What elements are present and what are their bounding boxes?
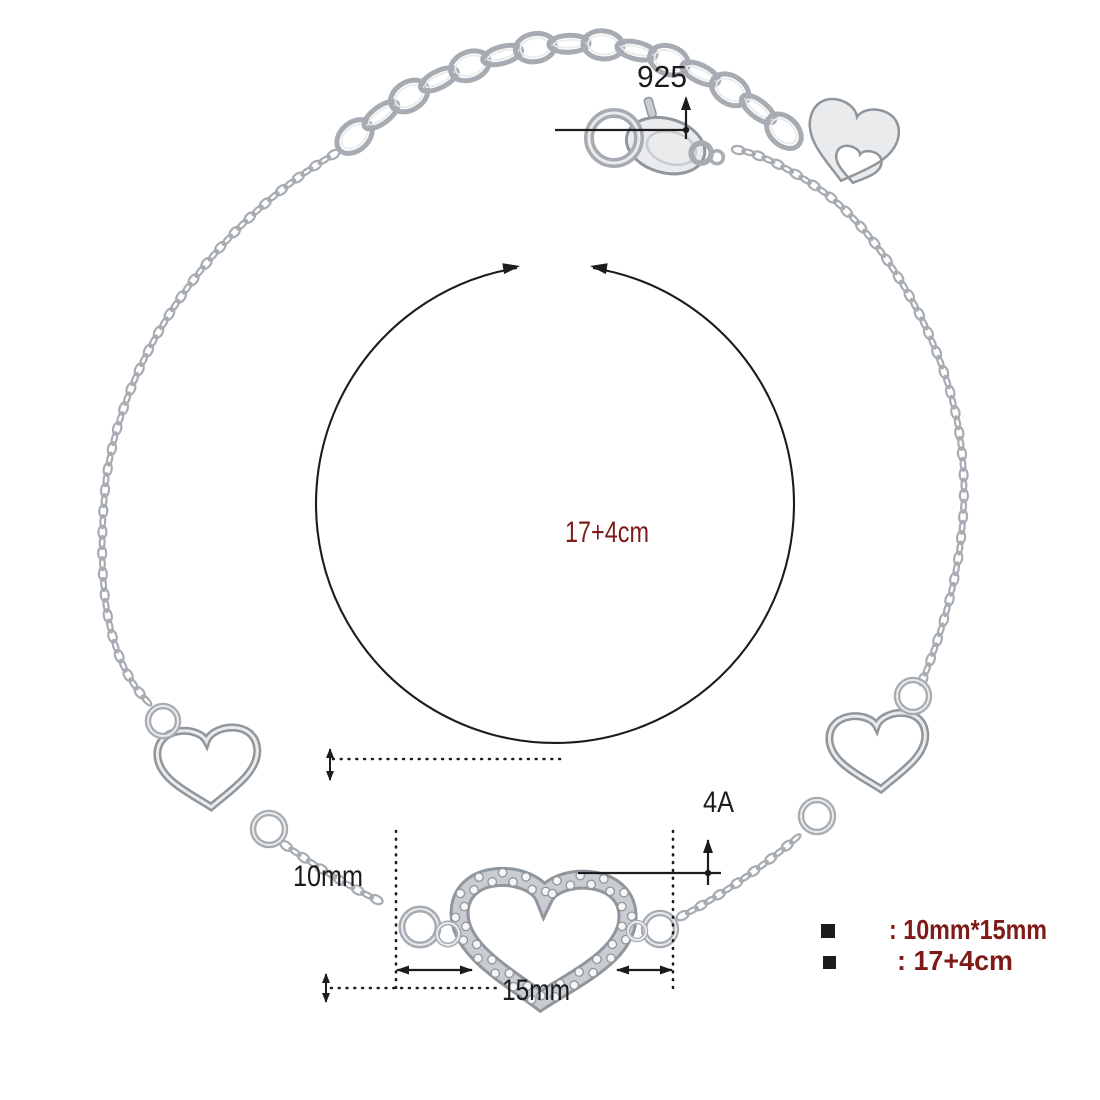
width-left-arrowhead-in [460,966,473,975]
chain-link [221,233,233,246]
chain-link [760,107,808,155]
chain-link [848,213,860,226]
right-heart-charm [828,711,929,792]
height-bottom-arrowhead-down [322,993,330,1003]
cz-stone [488,878,497,887]
circle-arrowhead-right [589,261,608,275]
chain-link [199,256,213,271]
cz-stone [587,880,596,889]
stamp-pointer-dot [683,127,689,133]
chain-link [186,272,200,287]
cz-stone [627,912,636,921]
chain-link-highlight [554,39,584,48]
right-heart-charm-highlight [828,711,929,792]
cz-stone [522,873,531,882]
chain-link [283,178,296,190]
width-right-arrowhead-in [616,966,629,975]
cz-stone [498,868,507,877]
bracelet-diagram-canvas: 17+4cm 925 4A 10mm 15mm : 10mm*15mm : 17… [0,0,1100,1100]
chain-link [833,198,846,210]
chain-link [839,204,854,219]
chain-link [867,236,881,251]
cz-stone [548,889,557,898]
jump-ring-highlight [148,706,178,736]
chain-link [756,859,769,871]
heart-tag [797,94,903,191]
cz-stone [620,888,629,897]
clasp-trigger [644,97,657,118]
chain-link [789,833,802,845]
cz-stone [589,968,598,977]
chain-link [369,893,384,906]
cz-stone [470,886,479,895]
chain-link [739,872,752,883]
jump-ring-highlight [402,909,438,945]
chain-link [773,846,786,858]
cz-stone [491,969,500,978]
grade-pointer-dot [705,870,711,876]
legend-bullet-size [821,924,835,938]
chain-link [300,166,313,177]
cz-stone [608,940,617,949]
chain-link [181,282,193,295]
jump-ring-highlight [801,800,833,832]
chain-link [875,245,887,258]
chain-link [194,265,206,278]
legend-size-label: : 10mm*15mm [889,914,1047,945]
chain-link [128,677,139,690]
silver-stamp-label: 925 [637,59,687,94]
cz-stone [618,902,627,911]
chain-link-highlight [587,34,619,56]
legend-bullet-length [823,956,836,969]
lobster-clasp [586,93,727,185]
chain-link [880,252,894,267]
chain-link [746,864,761,878]
chain-link [140,694,152,707]
cable-chain-left-guide [102,152,338,706]
chain-link [274,183,289,197]
cz-stone [460,902,469,911]
cz-stone [599,875,608,884]
chain-link [816,186,829,197]
height-bottom-arrowhead-up [322,973,330,983]
chain-link [207,249,219,262]
chain-link [258,196,273,211]
cz-stone [528,885,537,894]
left-heart-charm [156,726,261,811]
bracelet-charms [148,93,929,1008]
chain-link [242,210,257,225]
cz-stone [606,887,615,896]
cz-stone [474,954,483,963]
chain-link [236,219,249,232]
jump-ring-highlight [253,813,285,845]
chain-link [227,225,242,240]
chain-length-label: 17+4cm [565,516,649,549]
height-top-arrowhead-up [326,748,334,758]
chain-link [174,289,188,304]
cz-stone [475,873,484,882]
cable-chain-right-guide [730,149,964,684]
width-left-arrowhead-out [396,966,409,975]
clasp-trigger-lever [644,97,657,118]
cz-stone [451,913,460,922]
cz-stone [462,922,471,931]
width-right-arrowhead-out [660,966,673,975]
pendant-width-label: 15mm [502,974,570,1007]
chain-link-highlight [337,119,372,153]
chain-link [780,838,795,852]
cz-stone [456,889,465,898]
jump-ring-highlight [897,680,929,712]
stamp-arrowhead [681,96,691,110]
cz-stone [607,954,616,963]
cz-stone [488,955,497,964]
chain-link [291,170,306,184]
chain-link [862,228,874,241]
circle-arrowhead-left [502,261,521,275]
chain-link [887,262,898,275]
cz-stone [566,881,575,890]
cz-stone [553,876,562,885]
circumference-circle [316,268,794,743]
cz-stone [618,922,627,931]
chain-link [824,190,839,204]
cz-stone [509,878,518,887]
cz-stone [570,981,579,990]
extension-chain-guide [342,44,806,156]
chain-link [330,113,379,160]
cz-stone [593,955,602,964]
stone-grade-label: 4A [703,786,734,819]
clasp-end-link [710,150,724,164]
chain-link [267,191,280,203]
left-heart-charm-highlight [156,726,261,811]
legend-length-label: : 17+4cm [897,945,1013,976]
chain-link [854,219,869,234]
grade-arrowhead [703,839,713,853]
height-top-arrowhead-down [326,771,334,781]
cz-stone [472,940,481,949]
chain-link [213,240,228,255]
chain-link [763,852,778,866]
chain-link-highlight [767,114,802,149]
chain-link [133,685,147,700]
measurement-annotations: 17+4cm 925 4A 10mm 15mm : 10mm*15mm : 17… [293,59,1047,1007]
legend: : 10mm*15mm : 17+4cm [821,914,1047,976]
pendant-height-label: 10mm [293,860,363,893]
cz-stone [575,968,584,977]
chain-link [251,204,264,216]
product-diagram: 17+4cm 925 4A 10mm 15mm : 10mm*15mm : 17… [0,0,1100,1100]
jump-ring-highlight [644,913,676,945]
